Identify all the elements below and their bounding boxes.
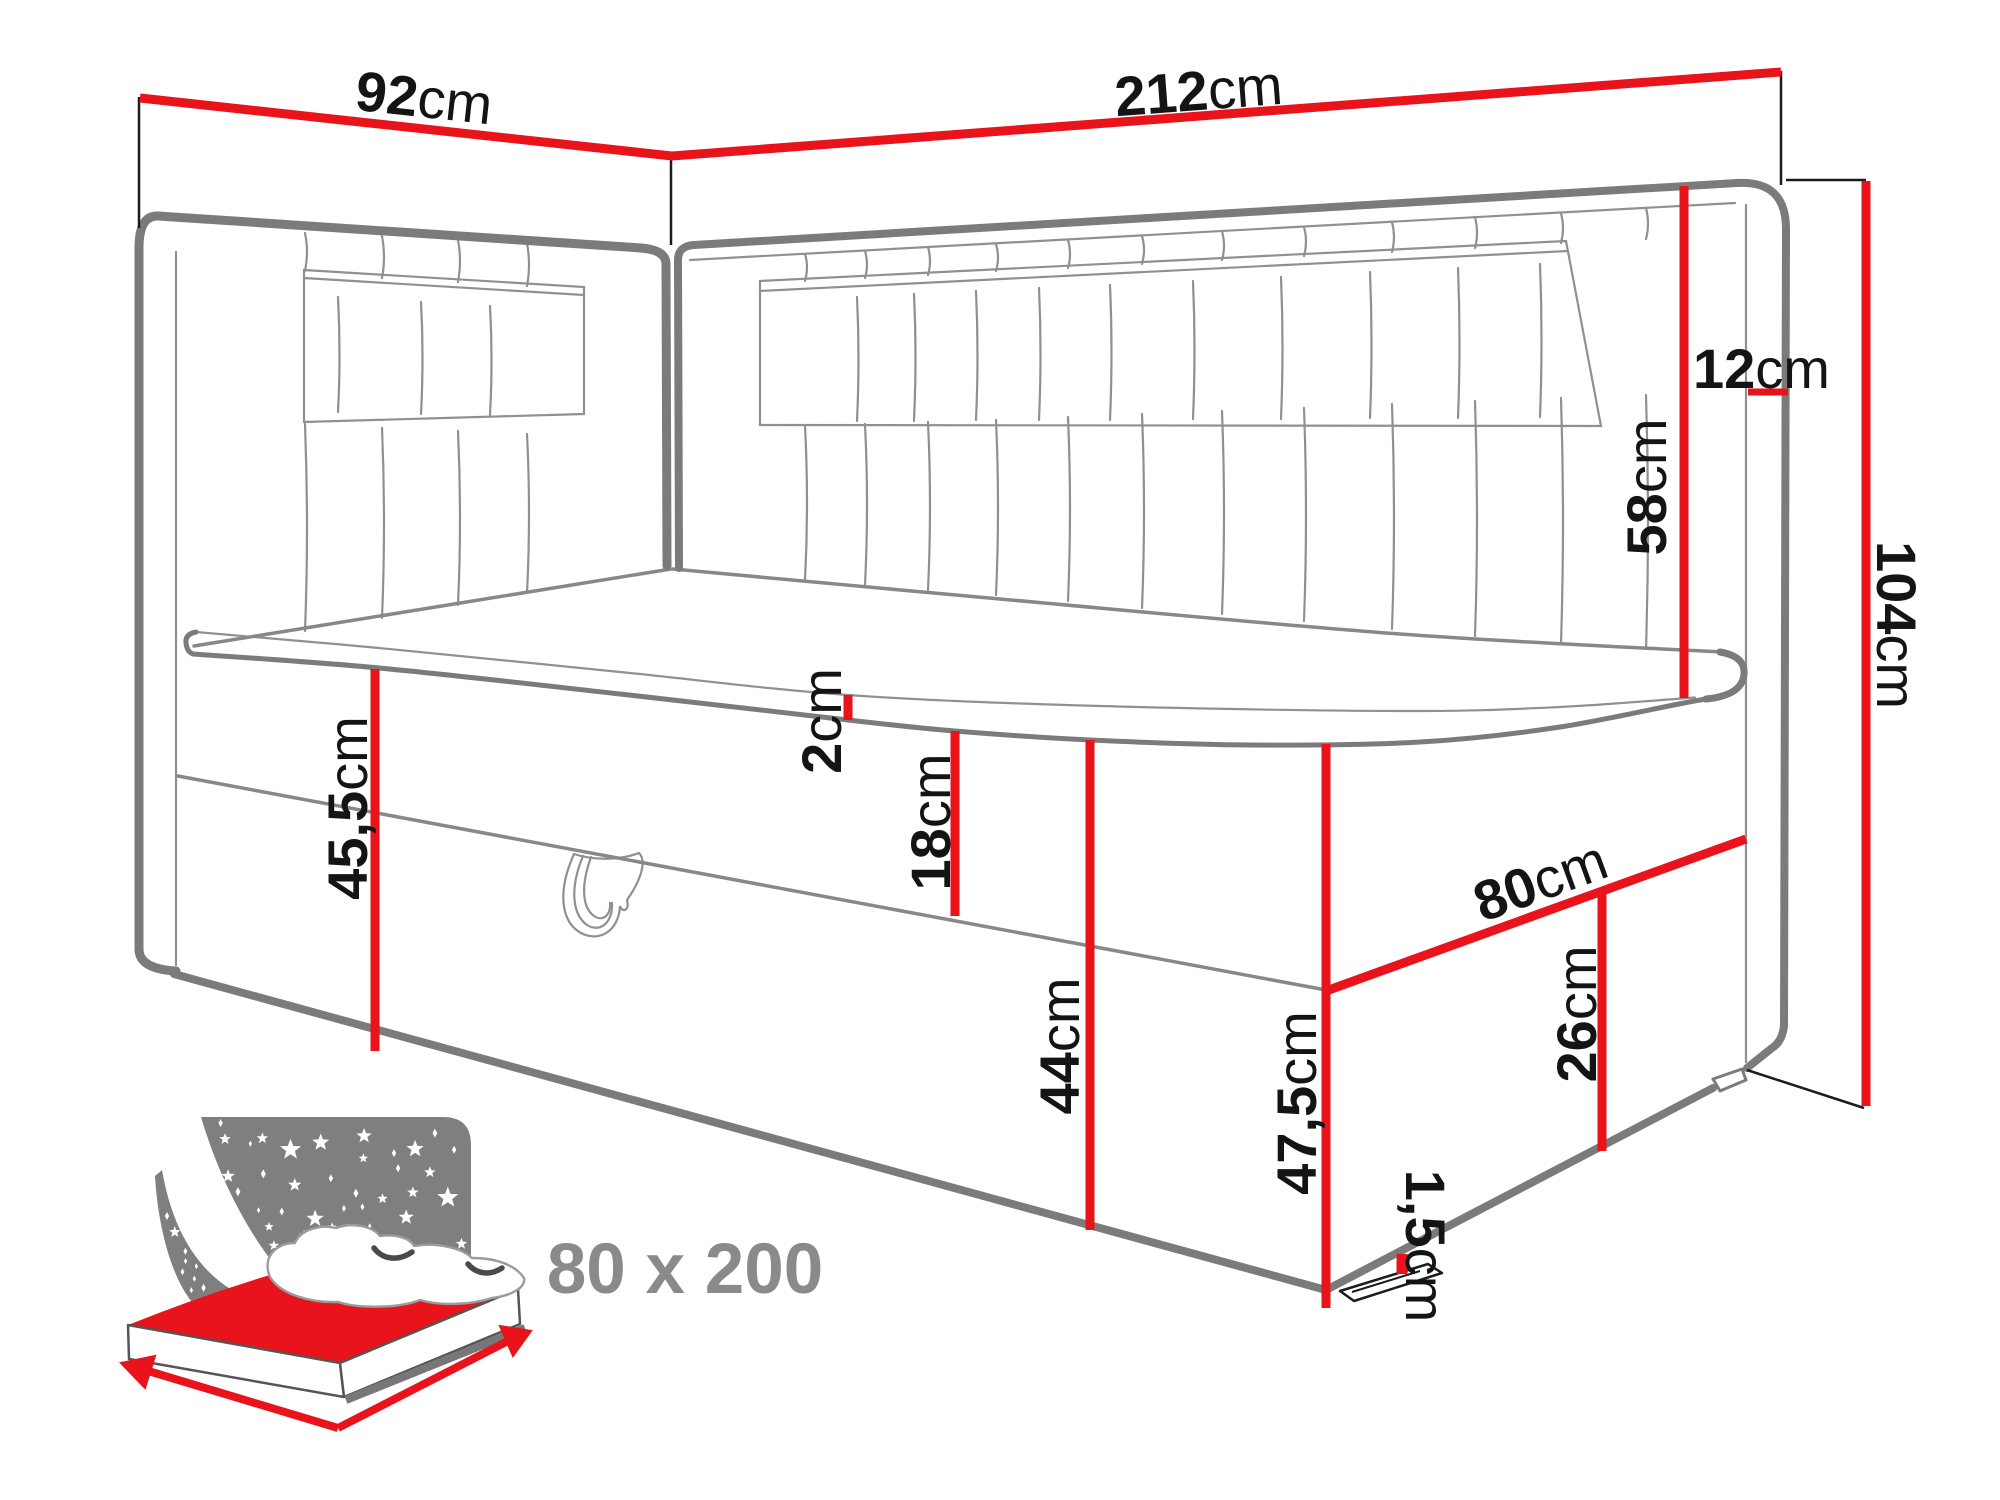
svg-text:45,5cm: 45,5cm (316, 716, 379, 900)
svg-text:26cm: 26cm (1545, 946, 1608, 1083)
svg-text:12cm: 12cm (1693, 337, 1830, 400)
svg-text:44cm: 44cm (1028, 978, 1091, 1115)
svg-text:212cm: 212cm (1112, 53, 1284, 128)
svg-text:2cm: 2cm (790, 668, 853, 774)
svg-text:18cm: 18cm (899, 754, 962, 891)
svg-text:1,5cm: 1,5cm (1394, 1170, 1457, 1323)
svg-text:58cm: 58cm (1615, 419, 1678, 556)
svg-text:47,5cm: 47,5cm (1265, 1011, 1328, 1195)
svg-text:80 x 200: 80 x 200 (547, 1230, 823, 1309)
svg-text:104cm: 104cm (1865, 541, 1928, 709)
